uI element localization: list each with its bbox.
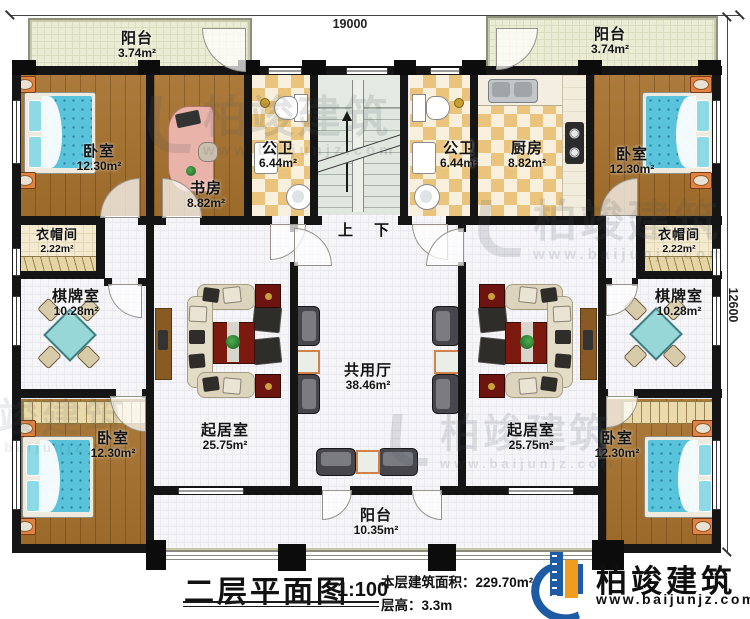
- room-name: 衣帽间: [644, 228, 714, 243]
- cushion: [202, 287, 220, 303]
- floor-height-line: 层高：3.3m: [381, 594, 452, 614]
- window: [430, 68, 460, 74]
- room-area: 2.22m²: [18, 243, 96, 255]
- logo-tower-edge: [578, 564, 583, 594]
- room-name: 衣帽间: [18, 228, 96, 243]
- side-table: [479, 284, 505, 308]
- hall-side-table: [356, 450, 380, 474]
- wall: [200, 216, 272, 225]
- column: [698, 60, 721, 75]
- hall-armchair: [316, 448, 356, 476]
- plant: [520, 335, 534, 349]
- room-area: 38.46m²: [328, 379, 408, 393]
- bed-pillow: [696, 136, 710, 168]
- drawing-title: 二层平面图: [184, 567, 349, 611]
- dimension-top-value: 19000: [320, 17, 380, 31]
- room-area: 3.74m²: [560, 43, 660, 57]
- room-label-kitchen: 厨房 8.82m²: [487, 140, 567, 171]
- room-name: 共用厅: [328, 362, 408, 379]
- wall: [304, 216, 322, 225]
- room-area: 12.30m²: [57, 160, 141, 174]
- cushion: [222, 377, 241, 395]
- desk-item: [158, 330, 168, 350]
- logo-swoosh: [523, 554, 602, 619]
- nightstand: [692, 420, 714, 437]
- floor-height-value: 3.3m: [422, 598, 453, 613]
- floor-area-line: 本层建筑面积：229.70m²: [381, 571, 533, 591]
- bed-pillow: [696, 100, 710, 132]
- column: [12, 60, 36, 75]
- nightstand: [690, 76, 712, 93]
- bed-pillow: [26, 480, 40, 512]
- room-area: 8.82m²: [166, 197, 246, 211]
- room-name: 卧室: [57, 143, 141, 160]
- stove-burner: [568, 146, 581, 159]
- window: [13, 100, 20, 164]
- wall: [146, 75, 154, 216]
- wall: [636, 216, 722, 225]
- floor-area-label: 本层建筑面积：: [381, 575, 476, 590]
- cushion: [202, 376, 220, 392]
- room-area: 3.74m²: [87, 47, 187, 61]
- room-label-bedroom-bl: 卧室 12.30m²: [73, 430, 153, 461]
- armchair: [252, 337, 283, 366]
- stair-arrowhead: [342, 111, 352, 121]
- column: [428, 544, 456, 571]
- cushion: [188, 353, 205, 368]
- wall: [12, 389, 116, 398]
- bed-pillow: [28, 136, 42, 168]
- plant: [186, 166, 196, 176]
- room-name: 阳台: [87, 30, 187, 47]
- room-area: 2.22m²: [644, 243, 714, 255]
- room-name: 阳台: [336, 507, 416, 524]
- cushion: [222, 286, 242, 304]
- column: [302, 60, 326, 75]
- wall: [446, 216, 604, 225]
- nightstand: [690, 172, 712, 189]
- hall-armchair: [432, 306, 460, 346]
- room-label-bedroom-br: 卧室 12.30m²: [577, 430, 657, 461]
- sink-basin: [420, 190, 432, 203]
- room-label-balcony-bottom: 阳台 10.35m²: [336, 507, 416, 538]
- cushion: [518, 377, 537, 395]
- room-name: 起居室: [185, 422, 265, 439]
- nightstand: [692, 518, 714, 535]
- dimension-right-value: 12600: [726, 279, 740, 331]
- cushion: [189, 306, 208, 323]
- wall: [634, 389, 722, 398]
- window: [713, 248, 720, 276]
- window: [178, 488, 244, 494]
- hall-armchair: [378, 448, 418, 476]
- wall: [12, 544, 160, 553]
- room-area: 6.44m²: [239, 157, 317, 171]
- room-name: 阳台: [560, 26, 660, 43]
- room-label-living-left: 起居室 25.75m²: [185, 422, 265, 453]
- room-area: 25.75m²: [185, 439, 265, 453]
- plant: [226, 335, 240, 349]
- wall: [350, 486, 412, 495]
- bed-pillow: [28, 100, 42, 132]
- toilet-bowl: [274, 96, 298, 120]
- cushion: [555, 330, 571, 344]
- sink-basin: [292, 190, 304, 203]
- window: [13, 440, 20, 510]
- cushion: [553, 306, 572, 323]
- window: [713, 440, 720, 510]
- window: [346, 68, 388, 74]
- toilet-bowl: [426, 96, 450, 120]
- brand-logo-icon: [531, 550, 593, 616]
- window: [13, 296, 20, 346]
- room-label-cloak-left: 衣帽间 2.22m²: [18, 228, 96, 255]
- cushion: [518, 286, 538, 304]
- wall: [400, 75, 408, 216]
- room-name: 厨房: [487, 140, 567, 157]
- brand-website: www.baijunjz.com: [596, 591, 750, 607]
- room-label-bath-left: 公卫 6.44m²: [239, 140, 317, 171]
- light-fixture: [454, 98, 464, 108]
- column: [146, 540, 166, 570]
- room-area: 10.35m²: [336, 524, 416, 538]
- room-area: 12.30m²: [590, 163, 674, 177]
- room-label-living-right: 起居室 25.75m²: [491, 422, 571, 453]
- floor-height-label: 层高：: [381, 598, 422, 613]
- logo-tower-blue: [550, 552, 563, 596]
- toilet-tank: [412, 94, 426, 122]
- window: [268, 68, 302, 74]
- bed-pillow: [698, 444, 712, 476]
- bed-pillow: [698, 480, 712, 512]
- stair-down-label: 下: [374, 219, 394, 240]
- armchair: [478, 337, 509, 366]
- room-area: 12.30m²: [73, 447, 153, 461]
- column: [462, 60, 486, 75]
- column: [138, 60, 160, 75]
- floor-area-value: 229.70m²: [476, 575, 534, 590]
- room-label-chess-right: 棋牌室 10.28m²: [639, 288, 719, 319]
- floor-plan-canvas: 19000 12600: [0, 0, 750, 619]
- cushion: [540, 376, 558, 392]
- room-label-shared-hall: 共用厅 38.46m²: [328, 362, 408, 393]
- hall-armchair: [432, 374, 460, 414]
- room-name: 棋牌室: [36, 288, 116, 305]
- wall: [12, 216, 100, 225]
- side-table: [255, 374, 281, 398]
- room-name: 卧室: [577, 430, 657, 447]
- room-name: 卧室: [73, 430, 153, 447]
- room-label-bedroom-tr: 卧室 12.30m²: [590, 146, 674, 177]
- wall: [638, 271, 722, 279]
- room-area: 8.82m²: [487, 157, 567, 171]
- room-area: 10.28m²: [639, 305, 719, 319]
- light-fixture: [260, 98, 270, 108]
- side-table: [255, 284, 281, 308]
- sofa-set-left: [187, 284, 283, 398]
- title-underline: [183, 606, 379, 607]
- room-area: 10.28m²: [36, 305, 116, 319]
- sink-basin: [514, 82, 532, 97]
- wall: [290, 262, 298, 492]
- room-label-bedroom-tl: 卧室 12.30m²: [57, 143, 141, 174]
- room-name: 卧室: [590, 146, 674, 163]
- room-label-study: 书房 8.82m²: [166, 180, 246, 211]
- sofa-set-right: [477, 284, 573, 398]
- cushion: [189, 330, 205, 344]
- room-name: 起居室: [491, 422, 571, 439]
- window: [508, 488, 574, 494]
- sink-basin: [492, 82, 510, 97]
- room-name: 书房: [166, 180, 246, 197]
- room-area: 12.30m²: [577, 447, 657, 461]
- side-table: [479, 374, 505, 398]
- room-label-balcony-tr: 阳台 3.74m²: [560, 26, 660, 57]
- logo-tower-orange: [565, 560, 578, 598]
- room-name: 公卫: [239, 140, 317, 157]
- wall: [398, 216, 412, 225]
- wall: [458, 262, 466, 492]
- wall: [96, 216, 105, 278]
- window: [713, 100, 720, 164]
- column: [394, 60, 416, 75]
- cushion: [540, 287, 558, 303]
- stove-burner: [568, 127, 581, 140]
- desk-chair: [198, 142, 218, 162]
- bed-pillow: [26, 444, 40, 476]
- cushion: [554, 353, 571, 368]
- stair-up-label: 上: [338, 219, 358, 240]
- armchair: [478, 305, 509, 334]
- armchair: [252, 305, 283, 334]
- room-label-balcony-tl: 阳台 3.74m²: [87, 30, 187, 61]
- room-label-cloak-right: 衣帽间 2.22m²: [644, 228, 714, 255]
- room-name: 棋牌室: [639, 288, 719, 305]
- column: [578, 60, 602, 75]
- room-label-chess-left: 棋牌室 10.28m²: [36, 288, 116, 319]
- room-area: 25.75m²: [491, 439, 571, 453]
- hall-side-table: [434, 350, 460, 374]
- wall: [12, 271, 104, 279]
- desk-item: [583, 330, 593, 350]
